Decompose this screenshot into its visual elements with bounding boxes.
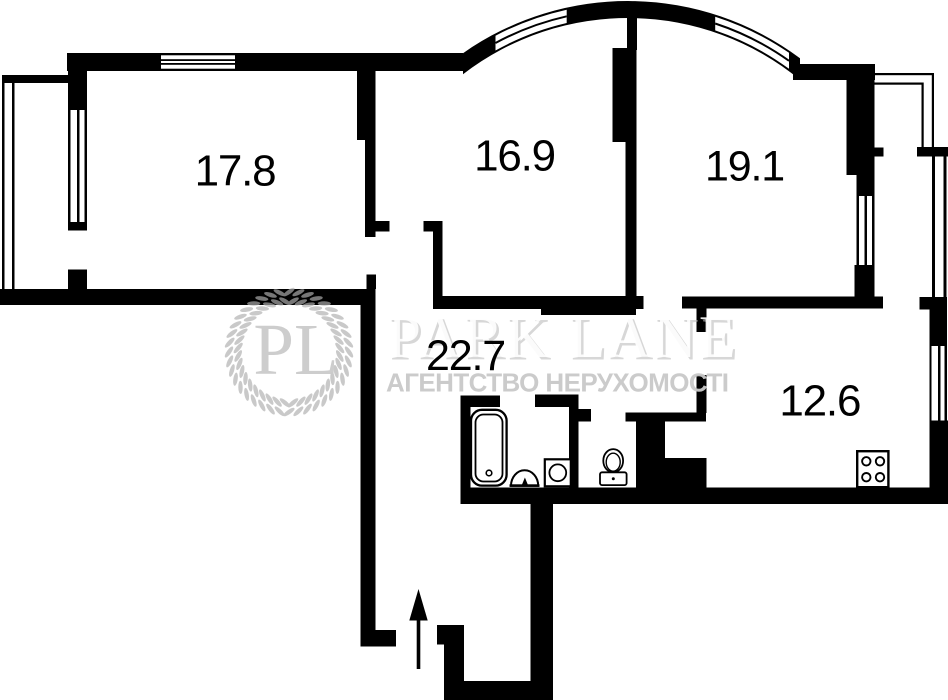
svg-text:PL: PL [253,309,338,390]
svg-text:17.8: 17.8 [195,147,276,196]
svg-text:16.9: 16.9 [474,132,555,181]
svg-text:12.6: 12.6 [779,377,860,426]
svg-text:19.1: 19.1 [705,143,784,191]
svg-text:22.7: 22.7 [426,332,505,380]
